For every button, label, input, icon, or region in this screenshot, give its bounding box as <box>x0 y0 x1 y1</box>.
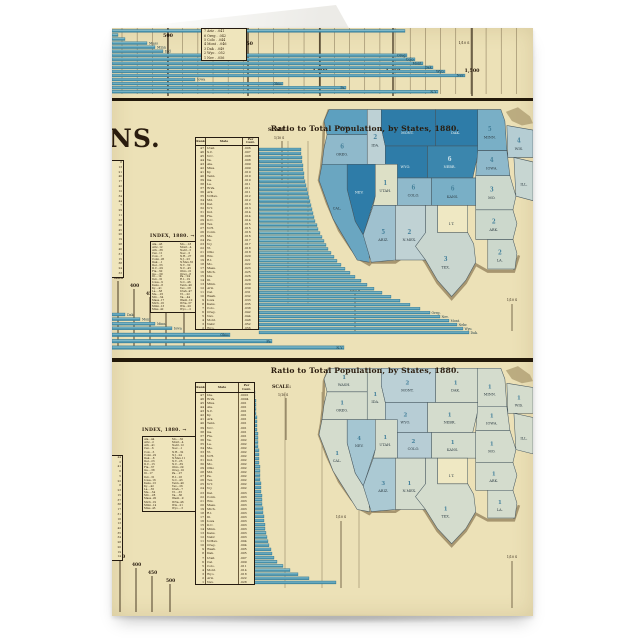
state-label: NEV. <box>355 190 364 194</box>
great-lakes <box>506 366 533 383</box>
state-class-number: 1 <box>444 506 448 512</box>
state-class-number: 3 <box>381 481 385 487</box>
bar <box>112 86 346 89</box>
scale-note: 1/10 S <box>458 41 470 45</box>
bar <box>254 498 262 501</box>
bar <box>112 346 344 350</box>
state-ark <box>476 462 517 490</box>
state-la <box>488 490 517 518</box>
state-nebr <box>428 146 478 178</box>
great-lakes <box>506 107 533 125</box>
section-divider-2 <box>112 358 533 362</box>
state-label: IDA. <box>371 143 379 147</box>
state-label: N.MEX. <box>403 238 417 242</box>
state-class-number: 2 <box>404 412 408 418</box>
state-class-number: 3 <box>490 187 494 193</box>
state-colo <box>397 432 431 458</box>
state-class-number: 1 <box>454 380 458 386</box>
state-label: IOWA. <box>486 166 497 170</box>
middle-section-title: Ratio to Total Population, by States, 18… <box>260 124 470 133</box>
state-class-number: 2 <box>498 250 502 256</box>
plate-title-fragment: NS. <box>112 124 161 153</box>
bar <box>254 486 261 489</box>
index-entry: Miss..42 <box>152 308 180 311</box>
state-label: WASH. <box>338 383 351 387</box>
step-scale-label: 400 <box>130 284 139 289</box>
strip-number: 14 <box>117 555 121 560</box>
bar <box>112 50 163 53</box>
bar <box>259 172 304 175</box>
state-class-number: 1 <box>383 435 387 441</box>
state-class-number: 3 <box>444 257 448 263</box>
bottom-rank-strip: 4424165228231537381731161342353428201914 <box>112 455 123 561</box>
bar-label: Mont <box>412 62 422 66</box>
table-header-cell: Per Cent. <box>243 138 258 145</box>
state-label: IDA. <box>371 400 379 404</box>
step-scale-label: 450 <box>148 571 157 576</box>
bar <box>259 331 469 334</box>
bar <box>112 74 465 77</box>
state-label: OREG. <box>336 153 348 157</box>
bar <box>112 62 423 65</box>
top-bar-chart: 5005501,0001,2501,5001/10 SMassMinnIndOr… <box>112 28 533 98</box>
state-ill <box>514 413 533 454</box>
bar-label: Ohio <box>273 82 281 86</box>
bar <box>259 319 449 322</box>
step-scale-label: 500 <box>166 579 175 584</box>
bar <box>254 515 264 518</box>
state-label: I.T. <box>449 474 454 478</box>
bar <box>112 318 140 321</box>
table-cell: .028 <box>239 580 254 584</box>
state-label: NEBR. <box>444 165 456 169</box>
state-class-number: 2 <box>492 219 496 225</box>
state-label: WIS. <box>515 403 523 407</box>
state-class-number: 4 <box>357 436 361 442</box>
table-row: 2Wyo..056 <box>196 326 258 330</box>
state-label: I.T. <box>449 222 454 226</box>
state-class-number: 6 <box>448 157 452 163</box>
state-label: COLO. <box>408 194 420 198</box>
bar-label: Mont <box>142 317 151 321</box>
state-class-number: 2 <box>373 135 377 141</box>
state-label: ARIZ. <box>377 238 388 242</box>
state-class-number: 1 <box>335 451 339 457</box>
bar <box>259 216 314 219</box>
bar-label: Dak <box>425 66 433 70</box>
bar-label: Nev <box>457 74 464 78</box>
state-label: ARK. <box>488 479 498 483</box>
bar-label: Ind <box>165 49 172 53</box>
state-label: UTAH. <box>379 189 391 193</box>
state-class-number: 1 <box>448 412 452 418</box>
bar-label: Wyo <box>436 70 443 74</box>
card-back-fold <box>100 3 356 31</box>
bar <box>112 78 195 81</box>
index-column: Ala...43Ariz..12Ark...36Cal...11Colo...7… <box>152 243 180 311</box>
strip-number: 33 <box>118 272 122 277</box>
middle-rank-strip: 8132140174212344472911233645261928463115… <box>112 160 124 278</box>
table-cell: Wyo. <box>206 326 243 330</box>
state-label: ARIZ. <box>377 489 388 493</box>
state-class-number: 6 <box>451 186 455 192</box>
state-label: MINN. <box>484 135 496 139</box>
bar-label: Pa <box>266 339 270 343</box>
state-class-number: 2 <box>412 439 416 445</box>
state-label: DAK. <box>451 388 460 392</box>
bar-label: Minn <box>157 322 165 326</box>
state-ill <box>514 157 533 200</box>
bar <box>254 523 265 526</box>
table-header: RankStatePer Cent. <box>196 138 258 146</box>
bar-end-label: Oreg. <box>432 311 441 315</box>
state-it <box>438 205 468 232</box>
us-map-bottom: 1WASH.1OREG.1IDA.2MONT.1DAK.1MINN.1WIS.2… <box>317 364 533 548</box>
state-minn <box>478 368 507 407</box>
state-colo <box>397 178 431 205</box>
table-header-cell: State <box>206 138 243 145</box>
state-class-number: 6 <box>412 185 416 191</box>
bar <box>259 307 420 310</box>
table-row: 1Nev..028 <box>196 580 254 584</box>
scale-tick-label: 1,500 <box>464 68 480 74</box>
state-label: IOWA. <box>486 421 497 425</box>
middle-index-label: INDEX, 1880. → <box>150 234 195 239</box>
state-class-number: 1 <box>451 440 455 446</box>
bar <box>259 160 302 163</box>
middle-rank-table: RankStatePer Cent.47Utah.00646S.C..00745… <box>195 137 259 330</box>
bar-label: Iowa <box>174 327 182 331</box>
state-mo <box>476 430 516 462</box>
state-nebr <box>428 403 478 433</box>
table-header-cell: State <box>206 383 239 392</box>
index-entry: Miss..45 <box>144 507 172 510</box>
state-label: LA. <box>497 508 503 512</box>
state-class-number: 1 <box>490 441 494 447</box>
state-label: ILL. <box>520 182 527 186</box>
state-la <box>488 239 517 269</box>
bottom-rank-table: RankStatePer Cent.47Ida..000146W.Va..000… <box>195 382 255 585</box>
table-header-cell: Rank <box>196 383 206 392</box>
bar <box>254 531 266 534</box>
bar-label: N.Y <box>430 90 437 94</box>
state-label: TEX. <box>441 514 450 518</box>
bar <box>254 490 261 493</box>
table-cell: 1 <box>196 580 206 584</box>
bottom-section-title: Ratio to Total Population, by States, 18… <box>260 366 470 375</box>
state-label: LA. <box>497 259 503 263</box>
state-class-number: 5 <box>381 230 385 236</box>
state-class-number: 2 <box>408 230 412 236</box>
bar-label: Iowa <box>197 78 205 82</box>
state-class-number: 2 <box>406 380 410 386</box>
index-column: Ala...44Ariz...2Ark...41Cal....6Colo...5… <box>144 438 172 510</box>
bar <box>112 322 155 325</box>
state-label: N.MEX. <box>403 489 417 493</box>
table-cell: Nev. <box>206 580 239 584</box>
us-map-middle: WASH.6OREG.2IDA.MONT.DAK.5MINN.4WIS.WYO.… <box>317 105 533 301</box>
bottom-index-label: INDEX, 1880. → <box>142 428 187 433</box>
state-label: TEX. <box>441 265 450 269</box>
bar <box>259 196 309 199</box>
state-it <box>438 458 468 484</box>
state-class-number: 1 <box>408 481 412 487</box>
bar <box>254 511 263 514</box>
state-class-number: 1 <box>492 471 496 477</box>
table-cell: 2 <box>196 326 206 330</box>
state-label: NEV. <box>355 444 364 448</box>
state-oreg <box>322 392 367 420</box>
bar <box>254 507 263 510</box>
table-header: RankStatePer Cent. <box>196 383 254 393</box>
state-class-number: 1 <box>373 392 377 398</box>
bar-label: N.Y <box>336 346 343 350</box>
state-oreg <box>322 135 367 165</box>
state-label: MONT. <box>401 388 413 392</box>
state-mo <box>476 176 516 210</box>
state-label: UTAH. <box>379 443 391 447</box>
state-class-number: 1 <box>490 413 494 419</box>
state-class-number: 1 <box>342 375 346 381</box>
greeting-card-front: 5005501,0001,2501,5001/10 SMassMinnIndOr… <box>112 28 533 616</box>
state-label: KANS. <box>447 195 458 199</box>
bar <box>254 494 262 497</box>
state-ark <box>476 210 517 240</box>
state-class-number: 1 <box>498 500 502 506</box>
state-label: MO. <box>488 196 495 200</box>
card-shadow <box>130 614 520 624</box>
scale-label: SCALE: <box>272 384 291 390</box>
bar <box>112 30 405 33</box>
table-header-cell: Rank <box>196 138 206 145</box>
state-label: CAL. <box>333 459 342 463</box>
scale-note: 1/10 S <box>278 393 288 397</box>
state-label: KANS. <box>447 448 458 452</box>
state-class-number: 1 <box>383 181 387 187</box>
bar <box>259 184 306 187</box>
state-class-number: 1 <box>488 384 492 390</box>
product-photo-stage: 5005501,0001,2501,5001/10 SMassMinnIndOr… <box>0 0 644 644</box>
bar <box>254 536 267 539</box>
bar <box>112 339 272 343</box>
state-class-number: 4 <box>517 138 521 144</box>
state-label: WYO. <box>401 165 411 169</box>
state-label: WYO. <box>401 420 411 424</box>
top-rank-box: 7 Ariz . .0416 Oreg . .0425 Colo . .0444… <box>201 28 247 61</box>
state-label: ILL. <box>520 436 527 440</box>
bar <box>112 82 283 85</box>
bar-label: Pa <box>340 86 344 90</box>
bar <box>254 519 264 522</box>
state-label: CAL. <box>333 206 342 210</box>
state-label: MINN. <box>484 392 496 396</box>
state-class-number: 1 <box>340 401 344 407</box>
bottom-index-table: Ala...44Ariz...2Ark...41Cal....6Colo...5… <box>142 436 202 512</box>
bar <box>112 46 155 49</box>
state-class-number: 1 <box>517 395 521 401</box>
state-class-number: 6 <box>340 144 344 150</box>
bar <box>112 66 433 69</box>
state-label: MO. <box>488 449 495 453</box>
state-class-number: 4 <box>490 158 494 164</box>
bar <box>254 482 261 485</box>
state-minn <box>478 110 507 151</box>
bar-label: Dak <box>127 313 133 317</box>
rank-box-row: 1 Nev . .056 <box>202 56 246 60</box>
state-label: ARK. <box>488 228 498 232</box>
scale-note: 1/10 S <box>507 555 517 559</box>
table-cell: .056 <box>243 326 258 330</box>
state-label: WIS. <box>515 147 523 151</box>
bar-end-label: Dak. <box>471 331 478 335</box>
bar <box>259 228 318 231</box>
bar-label: Ohio <box>220 333 228 337</box>
scale-note: 1/10 S <box>274 136 284 140</box>
bar-end-label: Nev. <box>442 315 449 319</box>
scale-tick-label: 500 <box>163 33 174 39</box>
state-class-number: 5 <box>488 127 492 133</box>
step-scale-label: 400 <box>132 563 141 568</box>
state-label: OREG. <box>336 409 348 413</box>
table-header-cell: Per Cent. <box>239 383 254 392</box>
state-label: COLO. <box>408 447 420 451</box>
state-label: NEBR. <box>444 420 456 424</box>
